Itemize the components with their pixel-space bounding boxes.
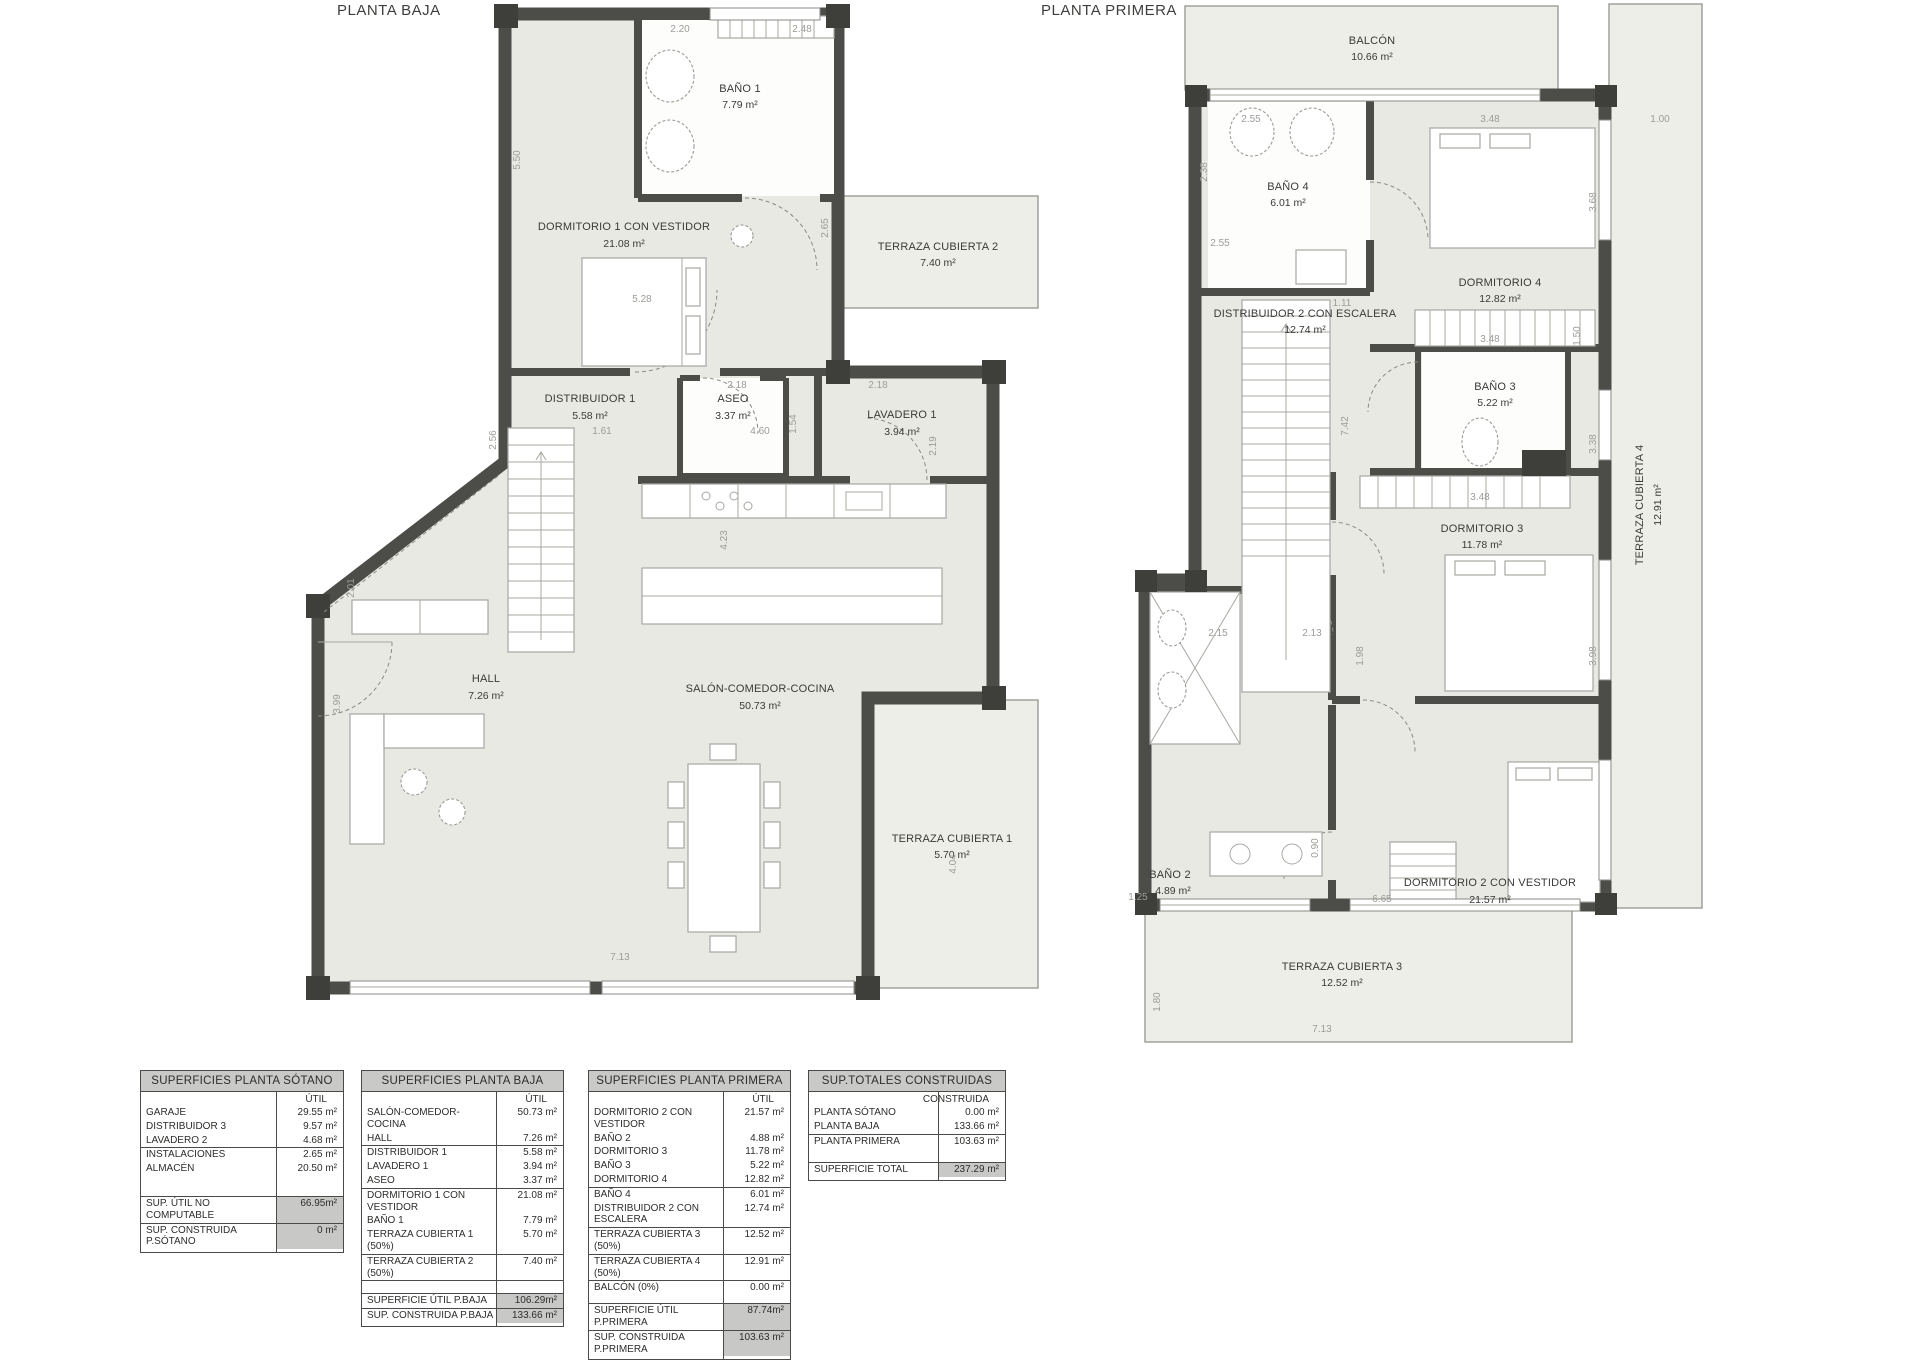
svg-text:7.40 m²: 7.40 m²: [920, 257, 956, 269]
svg-text:SALÓN-COMEDOR-COCINA: SALÓN-COMEDOR-COCINA: [686, 682, 835, 695]
svg-text:3.48: 3.48: [1480, 114, 1500, 125]
table-row: PLANTA PRIMERA103.63 m²: [809, 1134, 1005, 1149]
row-value: 21.57 m²: [724, 1106, 790, 1132]
table-row: TERRAZA CUBIERTA 3 (50%)12.52 m²: [589, 1227, 790, 1254]
svg-text:5.28: 5.28: [632, 294, 652, 305]
svg-text:5.58 m²: 5.58 m²: [572, 410, 608, 422]
terrace-3-area: [1145, 908, 1572, 1042]
row-label: PLANTA BAJA: [809, 1120, 939, 1134]
svg-text:1.11: 1.11: [1333, 298, 1352, 309]
table-row: DISTRIBUIDOR 39.57 m²: [141, 1120, 343, 1134]
table-row: DISTRIBUIDOR 15.58 m²: [362, 1145, 563, 1160]
row-value: 0 m²: [277, 1224, 343, 1250]
table-row: TERRAZA CUBIERTA 4 (50%)12.91 m²: [589, 1254, 790, 1281]
windows: [350, 981, 854, 994]
svg-text:BAÑO 1: BAÑO 1: [719, 82, 761, 95]
stairs: [508, 428, 574, 652]
svg-text:TERRAZA CUBIERTA 1: TERRAZA CUBIERTA 1: [892, 833, 1013, 845]
svg-text:DISTRIBUIDOR 1: DISTRIBUIDOR 1: [545, 393, 636, 405]
row-value: 12.52 m²: [724, 1228, 790, 1254]
row-label: BAÑO 4: [589, 1188, 724, 1202]
row-value: 6.01 m²: [724, 1188, 790, 1202]
row-value: 7.40 m²: [497, 1255, 563, 1281]
row-label: LAVADERO 1: [362, 1160, 497, 1174]
summary-row: SUPERFICIE TOTAL237.29 m²: [809, 1162, 1005, 1177]
row-value: 66.95m²: [277, 1197, 343, 1223]
row-label: SUP. CONSTRUIDA P.SÓTANO: [141, 1224, 277, 1250]
svg-text:7.79 m²: 7.79 m²: [722, 99, 758, 111]
row-value: 11.78 m²: [724, 1145, 790, 1159]
row-label: SALÓN-COMEDOR-COCINA: [362, 1106, 497, 1132]
svg-text:1.61: 1.61: [592, 426, 612, 437]
table-row: DORMITORIO 2 CON VESTIDOR21.57 m²: [589, 1106, 790, 1132]
table-row: BAÑO 17.79 m²: [362, 1214, 563, 1228]
table-row: BAÑO 46.01 m²: [589, 1187, 790, 1202]
wardrobe: [1415, 310, 1595, 346]
row-value: 29.55 m²: [277, 1106, 343, 1120]
table-row: SALÓN-COMEDOR-COCINA50.73 m²: [362, 1106, 563, 1132]
table-row: BALCÓN (0%)0.00 m²: [589, 1280, 790, 1295]
row-label: SUPERFICIE ÚTIL P.BAJA: [362, 1294, 497, 1308]
table-row: BAÑO 24.88 m²: [589, 1132, 790, 1146]
svg-text:1.54: 1.54: [788, 414, 799, 434]
svg-text:HALL: HALL: [472, 673, 500, 685]
svg-text:12.82 m²: 12.82 m²: [1479, 293, 1521, 305]
svg-text:DISTRIBUIDOR 2 CON ESCALERA: DISTRIBUIDOR 2 CON ESCALERA: [1214, 308, 1397, 320]
row-value: 9.57 m²: [277, 1120, 343, 1134]
svg-text:2.20: 2.20: [670, 24, 690, 35]
svg-text:7.26 m²: 7.26 m²: [468, 690, 504, 702]
row-value: 5.70 m²: [497, 1228, 563, 1254]
table-row: BAÑO 35.22 m²: [589, 1159, 790, 1173]
row-label: TERRAZA CUBIERTA 4 (50%): [589, 1255, 724, 1281]
column-header: ÚTIL: [589, 1092, 790, 1106]
row-value: 12.74 m²: [724, 1202, 790, 1228]
svg-text:2.55: 2.55: [1210, 238, 1230, 249]
svg-text:2.38: 2.38: [1199, 162, 1210, 182]
row-label: BALCÓN (0%): [589, 1281, 724, 1295]
svg-text:12.91 m²: 12.91 m²: [1652, 484, 1664, 526]
table-row: HALL7.26 m²: [362, 1132, 563, 1146]
svg-text:ASEO: ASEO: [717, 393, 749, 405]
svg-text:1.80: 1.80: [1152, 992, 1163, 1012]
row-value: 106.29m²: [497, 1294, 563, 1308]
row-label: DISTRIBUIDOR 3: [141, 1120, 277, 1134]
row-value: 7.26 m²: [497, 1132, 563, 1146]
svg-text:BALCÓN: BALCÓN: [1349, 34, 1395, 47]
svg-text:1.00: 1.00: [1650, 114, 1670, 125]
svg-text:TERRAZA CUBIERTA 3: TERRAZA CUBIERTA 3: [1282, 961, 1403, 973]
svg-text:3.37 m²: 3.37 m²: [715, 410, 751, 422]
svg-text:BAÑO 4: BAÑO 4: [1267, 180, 1309, 193]
svg-text:2.13: 2.13: [1302, 628, 1322, 639]
row-label: DORMITORIO 3: [589, 1145, 724, 1159]
table-row: ASEO3.37 m²: [362, 1174, 563, 1188]
row-label: INSTALACIONES: [141, 1148, 277, 1162]
svg-text:2.65: 2.65: [820, 218, 831, 238]
table-row: LAVADERO 13.94 m²: [362, 1160, 563, 1174]
table-row: PLANTA SÓTANO0.00 m²: [809, 1106, 1005, 1120]
row-value: 7.79 m²: [497, 1214, 563, 1228]
svg-text:4.04: 4.04: [948, 854, 959, 874]
bed: [1430, 128, 1595, 248]
wardrobe: [1360, 476, 1570, 508]
floor-plan-sheet: PLANTA BAJA PLANTA PRIMERA: [0, 0, 1920, 1280]
svg-text:DORMITORIO 4: DORMITORIO 4: [1459, 277, 1542, 289]
summary-row: SUP. ÚTIL NO COMPUTABLE66.95m²: [141, 1196, 343, 1223]
kitchen-island: [642, 568, 942, 624]
row-value: 2.65 m²: [277, 1148, 343, 1162]
row-label: SUPERFICIE TOTAL: [809, 1163, 939, 1177]
row-label: GARAJE: [141, 1106, 277, 1120]
svg-text:1.25: 1.25: [1128, 892, 1148, 903]
table-row: DORMITORIO 1 CON VESTIDOR21.08 m²: [362, 1188, 563, 1215]
bathroom-3-fixtures: [1462, 418, 1498, 466]
summary-row: SUP. CONSTRUIDA P.PRIMERA103.63 m²: [589, 1330, 790, 1357]
row-value: 3.37 m²: [497, 1174, 563, 1188]
table-row: INSTALACIONES2.65 m²: [141, 1147, 343, 1162]
svg-text:2.56: 2.56: [488, 430, 499, 450]
row-label: DORMITORIO 1 CON VESTIDOR: [362, 1189, 497, 1215]
surface-table-totales: SUP.TOTALES CONSTRUIDAS CONSTRUIDA PLANT…: [808, 1070, 1006, 1181]
surface-table-planta-baja: SUPERFICIES PLANTA BAJA ÚTIL SALÓN-COMED…: [361, 1070, 564, 1327]
svg-text:10.66 m²: 10.66 m²: [1351, 51, 1393, 63]
row-value: 3.94 m²: [497, 1160, 563, 1174]
svg-text:2.48: 2.48: [792, 24, 812, 35]
table-title: SUPERFICIES PLANTA BAJA: [362, 1071, 563, 1092]
column-header: CONSTRUIDA: [809, 1092, 1005, 1106]
column-header: ÚTIL: [141, 1092, 343, 1106]
summary-row: SUP. CONSTRUIDA P.BAJA133.66 m²: [362, 1308, 563, 1323]
row-label: TERRAZA CUBIERTA 1 (50%): [362, 1228, 497, 1254]
row-label: ASEO: [362, 1174, 497, 1188]
row-value: 103.63 m²: [939, 1135, 1005, 1149]
row-value: 0.00 m²: [724, 1281, 790, 1295]
surface-table-planta-primera: SUPERFICIES PLANTA PRIMERA ÚTIL DORMITOR…: [588, 1070, 791, 1360]
summary-row: SUPERFICIE ÚTIL P.BAJA106.29m²: [362, 1293, 563, 1308]
row-value: 87.74m²: [724, 1304, 790, 1330]
table-title: SUPERFICIES PLANTA PRIMERA: [589, 1071, 790, 1092]
svg-text:3.38: 3.38: [1588, 434, 1599, 454]
row-value: 20.50 m²: [277, 1162, 343, 1176]
row-label: HALL: [362, 1132, 497, 1146]
row-label: DORMITORIO 2 CON VESTIDOR: [589, 1106, 724, 1132]
svg-text:4.89 m²: 4.89 m²: [1155, 885, 1191, 897]
row-label: SUP. CONSTRUIDA P.BAJA: [362, 1309, 497, 1323]
row-label: DISTRIBUIDOR 2 CON ESCALERA: [589, 1202, 724, 1228]
svg-text:2.55: 2.55: [1241, 114, 1261, 125]
svg-text:2.15: 2.15: [1208, 628, 1228, 639]
row-label: SUPERFICIE ÚTIL P.PRIMERA: [589, 1304, 724, 1330]
svg-text:DORMITORIO 2 CON VESTIDOR: DORMITORIO 2 CON VESTIDOR: [1404, 877, 1576, 889]
row-value: 133.66 m²: [939, 1120, 1005, 1134]
row-label: DORMITORIO 4: [589, 1173, 724, 1187]
svg-text:3.48: 3.48: [1480, 334, 1500, 345]
row-value: 5.22 m²: [724, 1159, 790, 1173]
svg-text:BAÑO 2: BAÑO 2: [1149, 868, 1191, 881]
row-label: BAÑO 3: [589, 1159, 724, 1173]
svg-text:50.73 m²: 50.73 m²: [739, 700, 781, 712]
svg-text:2.01: 2.01: [346, 578, 357, 598]
row-label: DISTRIBUIDOR 1: [362, 1146, 497, 1160]
svg-text:DORMITORIO 3: DORMITORIO 3: [1441, 523, 1524, 535]
svg-text:0.90: 0.90: [1310, 838, 1321, 858]
row-value: 103.63 m²: [724, 1331, 790, 1357]
svg-text:4.23: 4.23: [719, 530, 730, 550]
table-row: LAVADERO 24.68 m²: [141, 1134, 343, 1148]
svg-text:11.78 m²: 11.78 m²: [1462, 539, 1503, 551]
svg-text:3.94 m²: 3.94 m²: [884, 426, 920, 438]
kitchen-counter: [642, 484, 946, 518]
svg-text:7.42: 7.42: [1340, 416, 1351, 436]
row-label: PLANTA PRIMERA: [809, 1135, 939, 1149]
table-row: PLANTA BAJA133.66 m²: [809, 1120, 1005, 1134]
floor-plan-planta-primera: BALCÓN 10.66 m² BAÑO 4 6.01 m² DORMITORI…: [1060, 0, 1740, 1070]
surface-table-planta-sotano: SUPERFICIES PLANTA SÓTANO ÚTIL GARAJE29.…: [140, 1070, 344, 1253]
svg-text:3.98: 3.98: [1588, 646, 1599, 666]
svg-text:5.22 m²: 5.22 m²: [1477, 397, 1513, 409]
table-title: SUPERFICIES PLANTA SÓTANO: [141, 1071, 343, 1092]
bed: [1445, 555, 1593, 691]
svg-text:1.50: 1.50: [1572, 326, 1583, 346]
svg-text:3.48: 3.48: [1470, 492, 1490, 503]
table-row: DORMITORIO 412.82 m²: [589, 1173, 790, 1187]
svg-text:5.50: 5.50: [512, 150, 523, 170]
svg-text:3.99: 3.99: [332, 694, 343, 714]
row-value: 12.91 m²: [724, 1255, 790, 1281]
svg-text:2.19: 2.19: [928, 436, 939, 456]
svg-text:21.57 m²: 21.57 m²: [1469, 894, 1511, 906]
row-value: 4.68 m²: [277, 1134, 343, 1148]
balcony-area: [1185, 6, 1558, 90]
svg-text:LAVADERO 1: LAVADERO 1: [867, 409, 936, 421]
table-row: TERRAZA CUBIERTA 1 (50%)5.70 m²: [362, 1228, 563, 1254]
summary-row: SUPERFICIE ÚTIL P.PRIMERA87.74m²: [589, 1303, 790, 1330]
table-row: ALMACÉN20.50 m²: [141, 1162, 343, 1176]
svg-text:6.01 m²: 6.01 m²: [1270, 197, 1306, 209]
svg-text:2.18: 2.18: [727, 380, 747, 391]
table-row: GARAJE29.55 m²: [141, 1106, 343, 1120]
row-value: 21.08 m²: [497, 1189, 563, 1215]
summary-row: SUP. CONSTRUIDA P.SÓTANO0 m²: [141, 1223, 343, 1250]
row-label: ALMACÉN: [141, 1162, 277, 1176]
svg-text:3.68: 3.68: [1588, 192, 1599, 212]
svg-text:4.60: 4.60: [750, 426, 770, 437]
row-value: 237.29 m²: [939, 1163, 1005, 1177]
row-value: 12.82 m²: [724, 1173, 790, 1187]
row-label: TERRAZA CUBIERTA 2 (50%): [362, 1255, 497, 1281]
svg-text:DORMITORIO 1 CON VESTIDOR: DORMITORIO 1 CON VESTIDOR: [538, 221, 710, 233]
row-value: 4.88 m²: [724, 1132, 790, 1146]
svg-text:7.13: 7.13: [610, 952, 630, 963]
table-title: SUP.TOTALES CONSTRUIDAS: [809, 1071, 1005, 1092]
floor-plan-planta-baja: BAÑO 1 7.79 m² DORMITORIO 1 CON VESTIDOR…: [290, 0, 1040, 1010]
row-value: 50.73 m²: [497, 1106, 563, 1132]
row-label: PLANTA SÓTANO: [809, 1106, 939, 1120]
svg-text:BAÑO 3: BAÑO 3: [1474, 380, 1516, 393]
row-label: TERRAZA CUBIERTA 3 (50%): [589, 1228, 724, 1254]
table-row: DISTRIBUIDOR 2 CON ESCALERA12.74 m²: [589, 1202, 790, 1228]
svg-text:12.52 m²: 12.52 m²: [1321, 977, 1363, 989]
svg-text:1.98: 1.98: [1355, 646, 1366, 666]
svg-text:TERRAZA CUBIERTA 2: TERRAZA CUBIERTA 2: [878, 241, 999, 253]
svg-text:TERRAZA CUBIERTA 4: TERRAZA CUBIERTA 4: [1634, 445, 1646, 566]
svg-text:7.13: 7.13: [1312, 1024, 1332, 1035]
row-label: SUP. ÚTIL NO COMPUTABLE: [141, 1197, 277, 1223]
svg-text:12.74 m²: 12.74 m²: [1284, 324, 1326, 336]
row-label: BAÑO 1: [362, 1214, 497, 1228]
svg-text:2.18: 2.18: [868, 380, 888, 391]
row-label: LAVADERO 2: [141, 1134, 277, 1148]
terrace-4-area: [1609, 4, 1702, 908]
column-header: ÚTIL: [362, 1092, 563, 1106]
svg-text:6.65: 6.65: [1372, 894, 1392, 905]
row-value: 133.66 m²: [497, 1309, 563, 1323]
row-value: 0.00 m²: [939, 1106, 1005, 1120]
table-row: DORMITORIO 311.78 m²: [589, 1145, 790, 1159]
row-label: SUP. CONSTRUIDA P.PRIMERA: [589, 1331, 724, 1357]
svg-text:21.08 m²: 21.08 m²: [603, 238, 645, 250]
wardrobe: [1390, 842, 1456, 902]
table-row: TERRAZA CUBIERTA 2 (50%)7.40 m²: [362, 1254, 563, 1281]
row-label: BAÑO 2: [589, 1132, 724, 1146]
row-value: 5.58 m²: [497, 1146, 563, 1160]
sideboard: [352, 600, 488, 634]
